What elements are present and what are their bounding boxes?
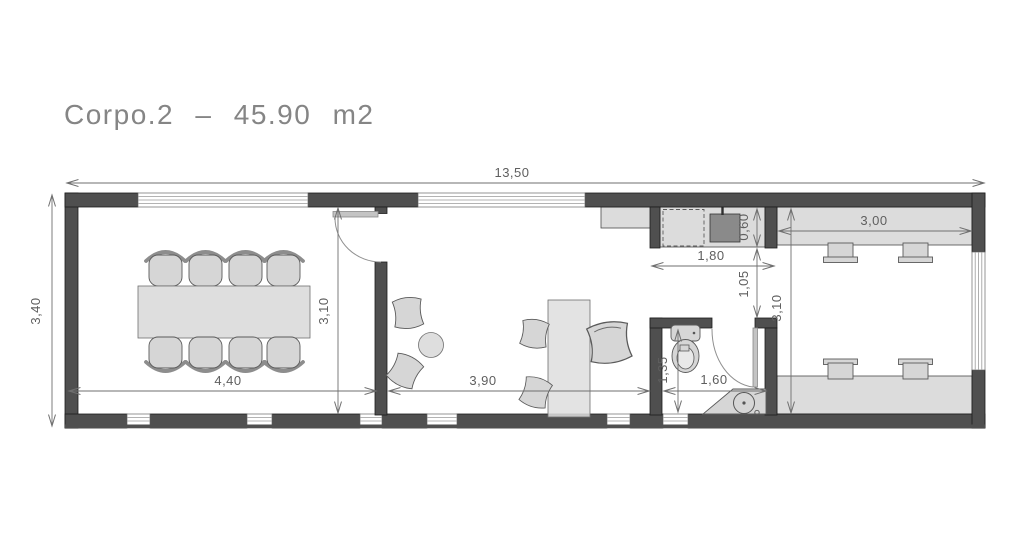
dim-overall-depth: 3,40: [28, 297, 43, 324]
meeting-chairs-top: [146, 252, 303, 286]
window: [418, 193, 585, 207]
toilet: [671, 325, 700, 373]
dim-passage-width: 1,05: [736, 270, 751, 297]
dim-studio-depth: 3,10: [769, 294, 784, 321]
dim-counter-depth: 0,60: [736, 213, 751, 240]
studio-counter-bottom: [777, 376, 972, 414]
meeting-table: [138, 286, 310, 338]
desk-chair: [519, 318, 549, 350]
bathroom: [671, 325, 766, 415]
meeting-room: [138, 252, 310, 371]
side-table: [419, 333, 444, 358]
window: [972, 252, 985, 370]
wall-segment: [972, 193, 985, 252]
studio-chair: [899, 359, 933, 379]
wall-segment: [308, 193, 418, 207]
dim-bathroom-width: 1,60: [700, 372, 727, 387]
wall-segment: [375, 262, 387, 415]
door-leaf: [333, 212, 378, 218]
office-room: [385, 296, 633, 417]
window: [138, 193, 308, 207]
kitchen-counter-left: [601, 207, 651, 228]
floor-plan-canvas: Corpo.2 – 45.90 m2: [0, 0, 1024, 542]
dim-kitchen-width: 1,80: [697, 248, 724, 263]
wall-segment: [765, 328, 777, 415]
corner-sink: [703, 389, 766, 415]
wall-segment: [650, 207, 660, 248]
meeting-room-door: [333, 212, 381, 263]
floor-plan-drawing: 13,50 3,40 4,40 3,10 3,90 1,80 0,60 1,05…: [0, 0, 1024, 542]
desk: [548, 300, 590, 417]
dim-overall-width: 13,50: [494, 165, 529, 180]
studio-chair: [824, 359, 858, 379]
dim-office-width: 3,90: [469, 373, 496, 388]
pouf: [392, 296, 424, 330]
wall-segment: [585, 193, 985, 207]
dim-meeting-depth: 3,10: [316, 297, 331, 324]
dim-meeting-width: 4,40: [214, 373, 241, 388]
studio-chair: [824, 243, 858, 263]
studio-chair: [899, 243, 933, 263]
door-swing-arc: [335, 218, 381, 262]
studio-room: [777, 207, 972, 414]
dim-bathroom-depth: 1,35: [655, 356, 670, 383]
door-leaf: [753, 328, 758, 387]
wall-segment: [65, 193, 138, 207]
pouf: [385, 351, 425, 392]
office-chair: [586, 319, 632, 365]
wall-segment: [972, 370, 985, 428]
wall-base-strip: [65, 425, 985, 429]
dim-studio-width: 3,00: [860, 213, 887, 228]
meeting-chairs-bottom: [146, 337, 303, 371]
wall-segment: [765, 207, 777, 248]
wall-segment: [65, 193, 78, 428]
